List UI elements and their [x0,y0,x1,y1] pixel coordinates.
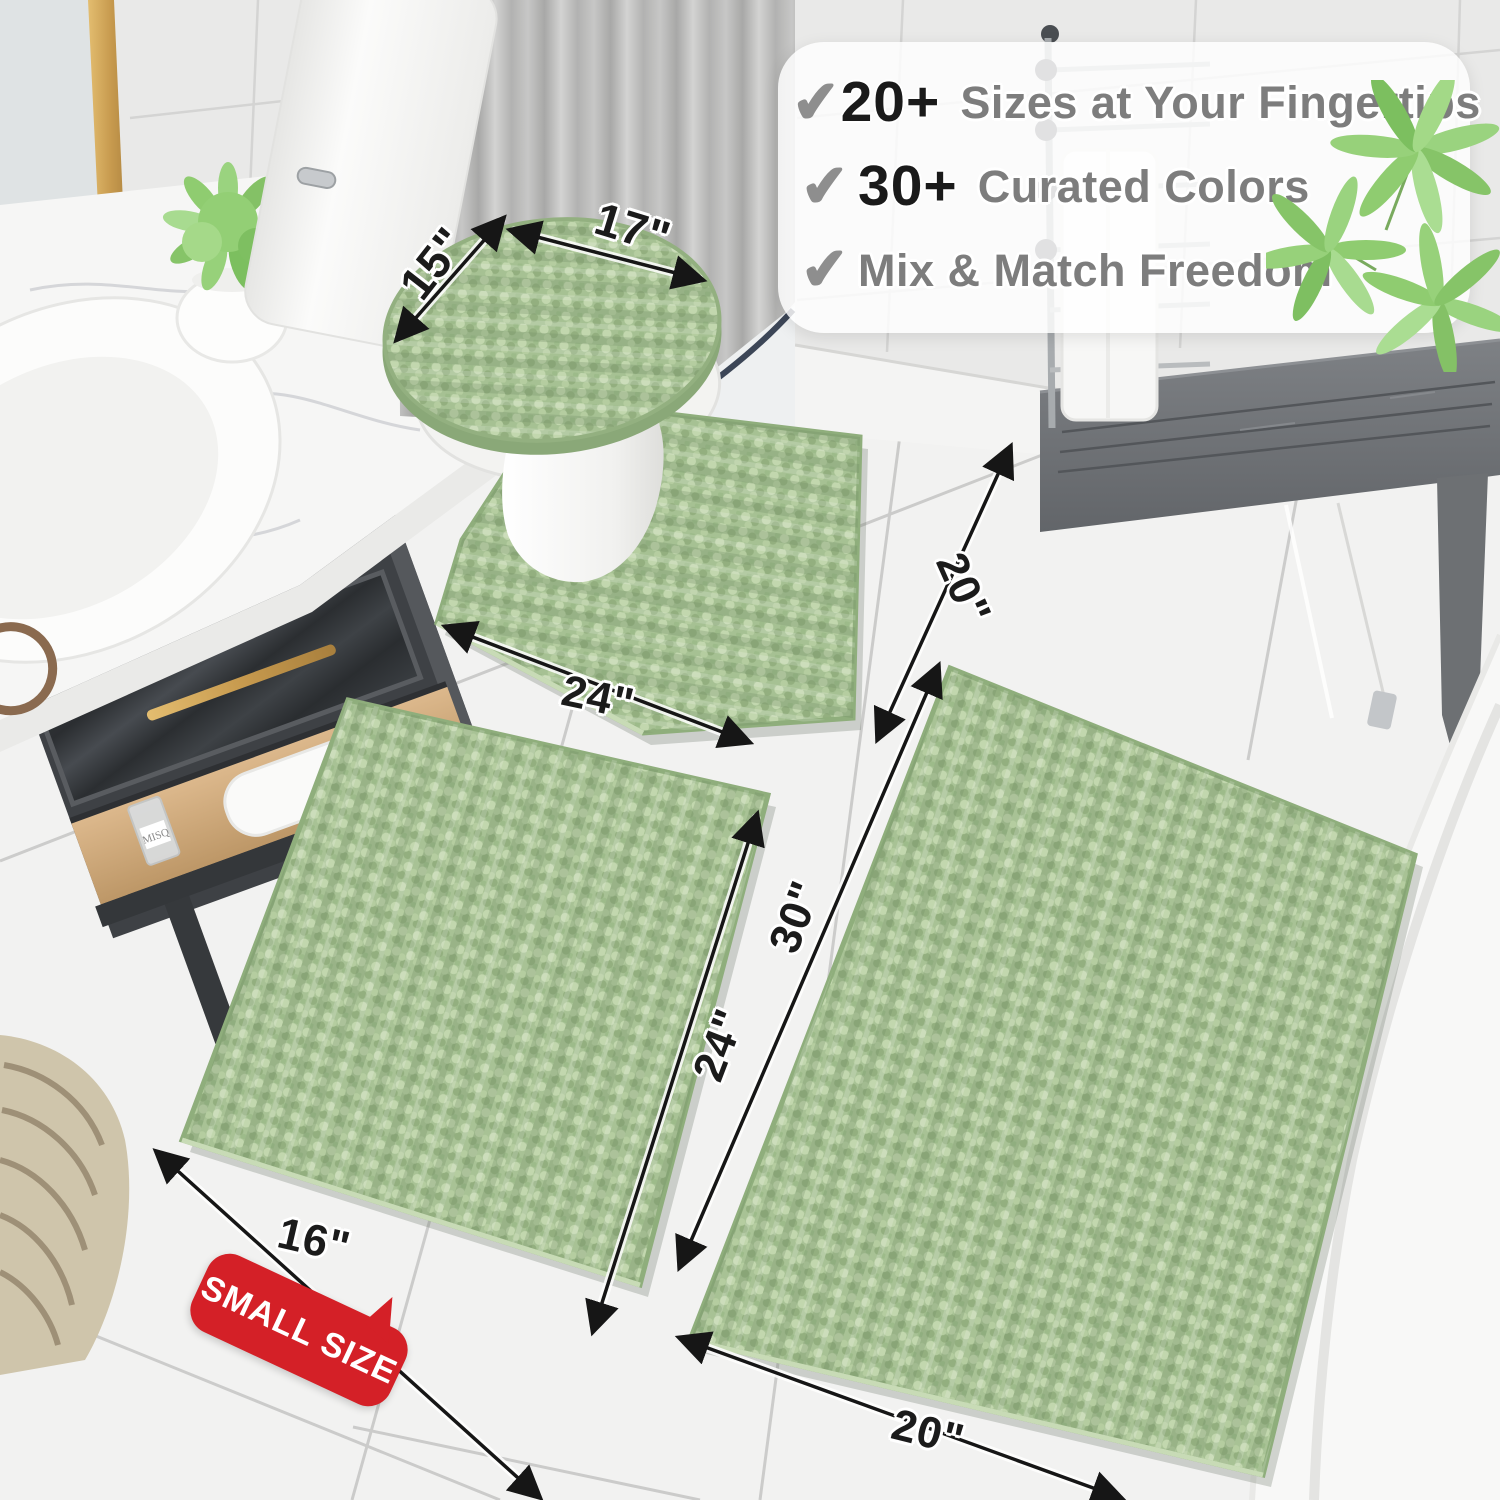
feature-number: 20+ [841,74,941,131]
wall-plant-leaves [1266,80,1500,372]
feature-number: 30+ [858,158,958,215]
product-image: MISQ [0,0,1500,1500]
wall-plant [1266,80,1500,372]
feature-label: Curated Colors [978,164,1310,209]
check-icon: ✔ [790,239,860,301]
check-icon: ✔ [790,155,860,217]
check-icon: ✔ [790,72,843,133]
feature-label: Mix & Match Freedom [858,248,1333,293]
